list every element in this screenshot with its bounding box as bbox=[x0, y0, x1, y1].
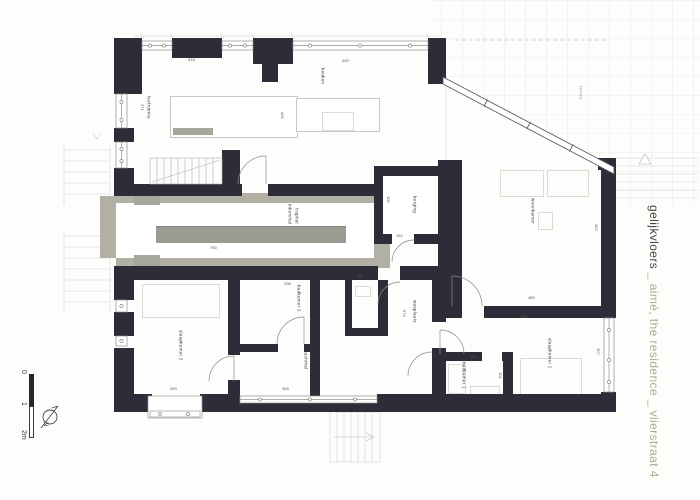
sheet-title: gelijkvloers _ aimé, the residence _ vli… bbox=[648, 205, 660, 478]
room-label-nachthal: nachthal bbox=[303, 350, 308, 369]
door-arcs bbox=[209, 156, 482, 381]
room-label-badkamer1: badkamer 1 bbox=[461, 362, 466, 389]
room-label-terras: terras bbox=[578, 86, 583, 99]
room-label-slaapkamer1: slaapkamer 1 bbox=[547, 338, 552, 369]
dim-berging-w: 152 bbox=[396, 234, 403, 238]
dim-badkamer1-w: 184 bbox=[470, 355, 477, 359]
dim-top-mid: 400 bbox=[342, 59, 349, 63]
floor-plan: leefruimte keuken terras woonkamer bergi… bbox=[0, 0, 700, 500]
dim-woonkamer-h: 493 bbox=[594, 224, 598, 231]
sheet-title-project: _ aimé, the residence _ vlierstraat 4 bbox=[647, 269, 661, 478]
room-label-badkamer2: badkamer 2 bbox=[296, 285, 301, 312]
north-label: N bbox=[42, 422, 48, 426]
room-label-traphal: traphal bbox=[294, 208, 299, 224]
room-label-woonkamer: woonkamer bbox=[530, 198, 535, 224]
dim-slaapkamer2: 290 bbox=[170, 387, 177, 391]
stair-treads bbox=[150, 158, 222, 184]
dim-nachthal: 308 bbox=[282, 387, 289, 391]
dim-wc-w: 96 bbox=[358, 275, 362, 279]
dim-left-room: 371 bbox=[140, 104, 144, 111]
dim-kitchen: 429 bbox=[280, 112, 284, 119]
windows bbox=[116, 41, 614, 418]
plan-openings bbox=[0, 0, 700, 500]
room-label-wasplaats: wasplaats bbox=[412, 300, 417, 323]
scale-label-1: 1 bbox=[20, 402, 27, 406]
scale-label-0: 0 bbox=[20, 370, 27, 374]
scale-bar-solid bbox=[29, 374, 34, 406]
sheet-title-level: gelijkvloers bbox=[647, 205, 661, 269]
room-label-slaapkamer2: slaapkamer 2 bbox=[178, 330, 183, 361]
dim-slaapkamer1-h: 307 bbox=[596, 348, 600, 355]
dim-slaapkamer1-w: 148 bbox=[520, 315, 527, 319]
dim-top-left: 416 bbox=[188, 58, 195, 62]
dim-badkamer2-w: 208 bbox=[284, 282, 291, 286]
dim-hall-h: 574 bbox=[402, 310, 406, 317]
room-label-berging: berging bbox=[412, 196, 417, 213]
scale-label-2m: 2m bbox=[20, 430, 27, 440]
room-label-leefruimte: leefruimte bbox=[146, 96, 151, 119]
room-label-inkomhal: inkomhal bbox=[287, 204, 292, 224]
dim-woonkamer-w: 480 bbox=[528, 296, 535, 300]
dim-badkamer1-h: 101 bbox=[498, 372, 502, 379]
glass-wall-diagonal bbox=[443, 77, 614, 174]
scale-bar-open bbox=[29, 406, 34, 438]
dim-corridor: 750 bbox=[210, 246, 217, 250]
dim-berging-h: 100 bbox=[386, 196, 390, 203]
room-label-keuken: keuken bbox=[320, 68, 325, 84]
